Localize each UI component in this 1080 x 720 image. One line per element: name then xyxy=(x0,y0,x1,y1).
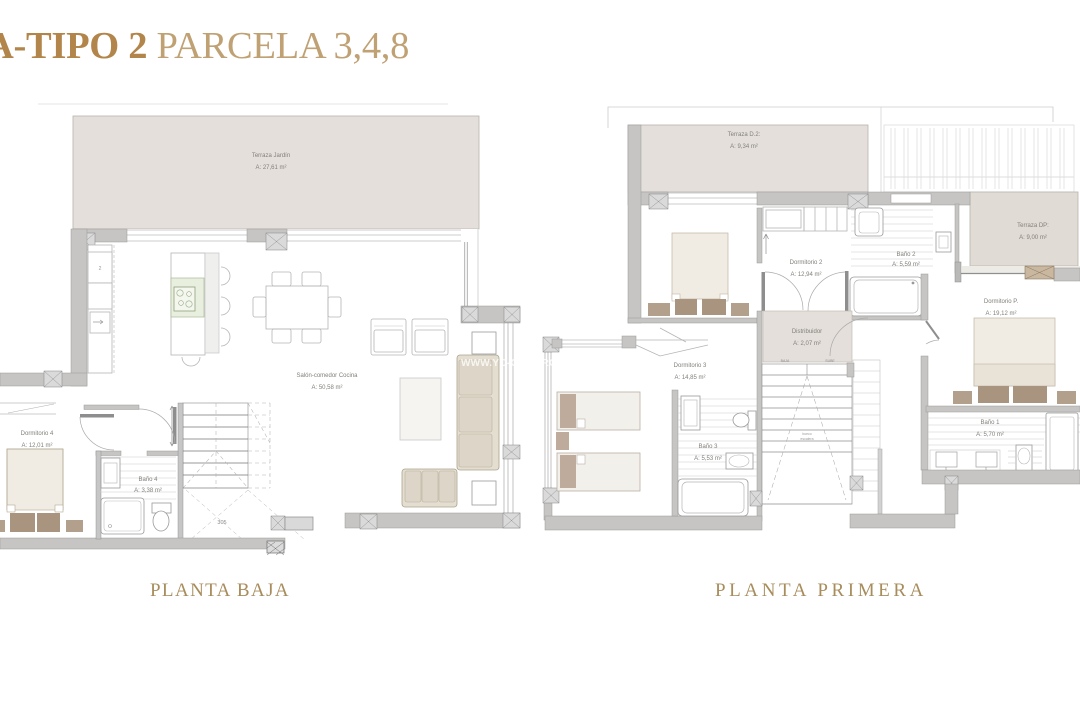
svg-text:PLANTA BAJA: PLANTA BAJA xyxy=(150,580,290,601)
svg-text:BAJA: BAJA xyxy=(781,359,790,363)
svg-text:A: 50,58 m²: A: 50,58 m² xyxy=(311,385,342,391)
svg-text:Dormitorio 4: Dormitorio 4 xyxy=(21,431,54,437)
svg-text:A: 27,61 m²: A: 27,61 m² xyxy=(255,165,286,171)
svg-text:Dormitorio 3: Dormitorio 3 xyxy=(674,363,707,369)
svg-text:A: 3,38 m²: A: 3,38 m² xyxy=(134,488,162,494)
svg-text:A: 9,34 m²: A: 9,34 m² xyxy=(730,144,758,150)
svg-text:Distribuidor: Distribuidor xyxy=(792,329,822,335)
svg-text:Terraza DP:: Terraza DP: xyxy=(1017,223,1049,229)
svg-text:WWW.YO-COMPRO.COM: WWW.YO-COMPRO.COM xyxy=(461,358,584,369)
svg-text:A: 19,12 m²: A: 19,12 m² xyxy=(985,311,1016,317)
svg-text:A: 14,85 m²: A: 14,85 m² xyxy=(674,375,705,381)
svg-text:Dormitorio P.: Dormitorio P. xyxy=(984,299,1019,305)
svg-text:Baño 1: Baño 1 xyxy=(980,420,1000,426)
svg-text:A: 12,94 m²: A: 12,94 m² xyxy=(790,272,821,278)
svg-text:A: 12,01 m²: A: 12,01 m² xyxy=(21,443,52,449)
svg-text:A: 5,59 m²: A: 5,59 m² xyxy=(892,262,920,268)
svg-text:Terraza D.2:: Terraza D.2: xyxy=(728,132,761,138)
svg-text:A: 2,07 m²: A: 2,07 m² xyxy=(793,341,821,347)
svg-text:Baño 3: Baño 3 xyxy=(698,444,718,450)
svg-text:Baño 2: Baño 2 xyxy=(896,252,916,258)
svg-text:2: 2 xyxy=(99,266,102,272)
svg-text:PLANTA PRIMERA: PLANTA PRIMERA xyxy=(715,580,927,601)
svg-text:A: 5,70 m²: A: 5,70 m² xyxy=(976,432,1004,438)
svg-text:Terraza Jardín: Terraza Jardín xyxy=(252,153,290,159)
svg-text:305: 305 xyxy=(217,520,226,526)
svg-text:escalera: escalera xyxy=(800,437,813,441)
svg-text:A-TIPO 2 PARCELA 3,4,8: A-TIPO 2 PARCELA 3,4,8 xyxy=(0,25,409,67)
svg-text:hueco: hueco xyxy=(802,432,812,436)
svg-text:SUBE: SUBE xyxy=(825,359,835,363)
svg-text:Dormitorio 2: Dormitorio 2 xyxy=(790,260,823,266)
svg-text:Salón-comedor Cocina: Salón-comedor Cocina xyxy=(296,373,358,379)
svg-text:Baño 4: Baño 4 xyxy=(138,477,158,483)
svg-text:A: 5,53 m²: A: 5,53 m² xyxy=(694,456,722,462)
svg-text:A: 9,00 m²: A: 9,00 m² xyxy=(1019,235,1047,241)
